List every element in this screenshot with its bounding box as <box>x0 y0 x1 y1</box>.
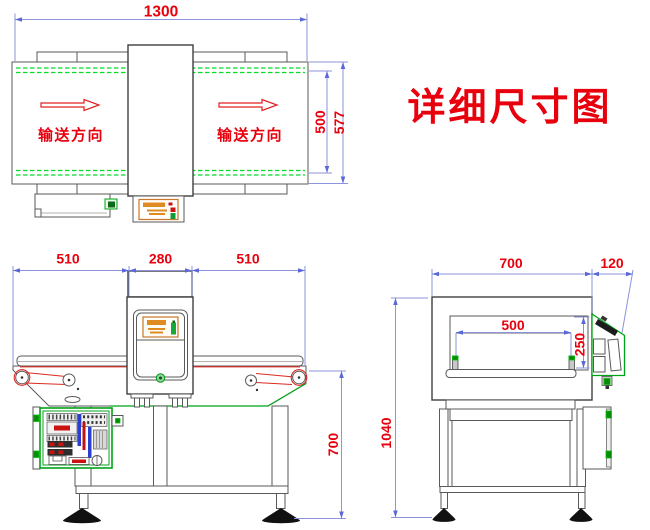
dim-label: 280 <box>149 251 173 267</box>
badge-sticker <box>65 397 80 403</box>
dim-label: 500 <box>312 110 328 134</box>
cross-member-side <box>440 487 585 493</box>
photo-sensor-lens <box>453 356 459 360</box>
display-row <box>148 328 165 330</box>
adjustable-foot <box>263 508 299 520</box>
dimension-drawing: 输送方向 输送方向 1300 500 577 详细尺寸图 <box>0 0 650 530</box>
dim-label: 510 <box>56 251 80 267</box>
motor-block <box>606 451 612 458</box>
motor-connector-core <box>108 202 115 208</box>
dim-top-belt-width: 500 <box>309 71 332 173</box>
display-key-red <box>171 208 176 213</box>
head-neck <box>128 271 192 297</box>
dim-label: 1040 <box>378 417 394 448</box>
bottle-cap <box>173 321 176 324</box>
dim-label: 120 <box>600 255 624 271</box>
name-plate-label <box>72 460 86 464</box>
motor-box-side <box>583 407 612 469</box>
display-row <box>149 213 165 215</box>
breaker-switch <box>59 443 64 447</box>
relay-label <box>54 426 70 431</box>
bracket-block <box>116 419 121 424</box>
terminal-strip <box>47 436 77 442</box>
breaker-switch <box>50 443 55 447</box>
conveyor-deck-side <box>446 370 576 378</box>
dim-label: 700 <box>325 433 341 457</box>
front-view: 510 280 510 700 <box>13 251 346 524</box>
breaker-switch <box>50 451 55 455</box>
detector-head-front <box>127 271 193 407</box>
electrical-cabinet <box>33 407 123 469</box>
hinge-block <box>34 415 39 422</box>
sensor-eye-center <box>159 377 162 380</box>
bolt <box>77 388 79 390</box>
hinge-block <box>34 451 39 458</box>
direction-label: 输送方向 <box>217 126 283 144</box>
cross-member <box>76 486 288 494</box>
adjustable-foot <box>433 508 455 519</box>
bolt <box>256 389 258 391</box>
dim-front-belt-height: 700 <box>294 371 346 519</box>
display-bracket-side <box>592 314 625 389</box>
adjustable-foot <box>570 508 592 519</box>
page-title: 详细尺寸图 <box>407 84 612 129</box>
base-cabinet <box>452 421 570 488</box>
dim-label: 1300 <box>144 4 178 21</box>
display-key-green <box>171 213 176 219</box>
foot-base <box>433 517 456 522</box>
top-view: 输送方向 输送方向 1300 500 577 <box>12 4 348 223</box>
connector-block <box>604 379 610 385</box>
dim-side-total-height: 1040 <box>378 298 432 518</box>
foot-base <box>63 518 101 523</box>
wire-red <box>83 422 86 450</box>
motor-block <box>606 411 612 418</box>
foot-base <box>570 517 593 522</box>
dim-label: 500 <box>501 317 525 333</box>
breaker-switch <box>59 451 64 455</box>
display-led <box>169 203 173 206</box>
side-view: 700 120 500 250 1040 <box>378 255 633 522</box>
wire-blue <box>78 414 82 446</box>
dim-label: 510 <box>236 251 260 267</box>
display-banner <box>147 320 166 325</box>
display-row <box>147 210 167 212</box>
dim-label: 577 <box>331 111 347 135</box>
dim-label: 700 <box>499 255 523 271</box>
connector-stem <box>606 386 610 390</box>
adjustable-foot <box>64 508 100 520</box>
bed-side <box>446 400 575 409</box>
detector-head-top <box>128 45 193 196</box>
terminal-strip <box>47 414 77 421</box>
display-banner <box>143 203 165 208</box>
motor-box-top <box>35 194 117 217</box>
control-panel-top <box>133 196 184 222</box>
wire-blue <box>88 427 92 458</box>
display-row <box>150 332 163 334</box>
contactor <box>94 430 108 449</box>
direction-label: 输送方向 <box>38 126 104 144</box>
base-rail <box>450 409 572 421</box>
dim-label: 250 <box>571 333 587 357</box>
bottle-icon <box>171 323 176 335</box>
